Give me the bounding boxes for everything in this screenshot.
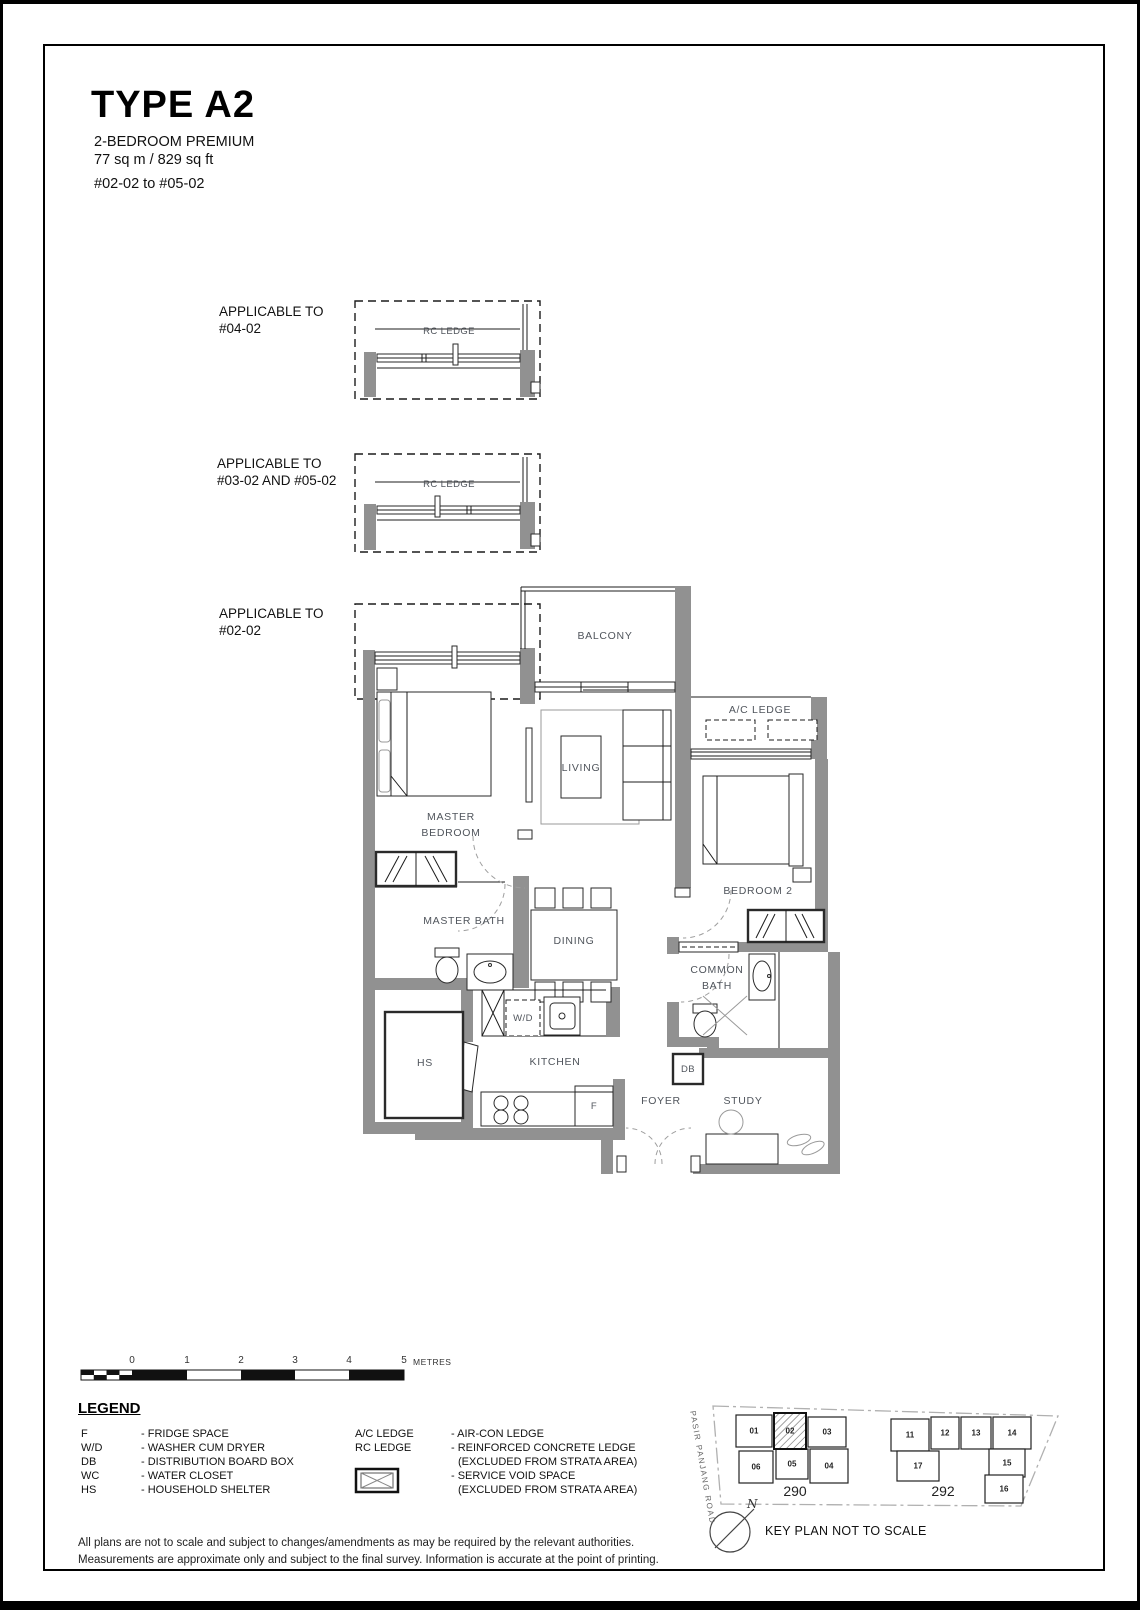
legend-def: - HOUSEHOLD SHELTER [141, 1484, 270, 1496]
north-label: N [747, 1497, 758, 1511]
page-title: TYPE A2 [91, 84, 255, 127]
scale-tick-2: 2 [238, 1355, 244, 1366]
unit-type-subtitle: 2-BEDROOM PREMIUM [94, 134, 254, 150]
scale-tick-1: 1 [184, 1355, 190, 1366]
keyplan-unit-01: 01 [750, 1427, 759, 1436]
room-label-bedroom2: BEDROOM 2 [723, 883, 792, 899]
legend-term: A/C LEDGE [355, 1428, 414, 1440]
scale-unit-label: METRES [413, 1357, 451, 1367]
legend-def: (EXCLUDED FROM STRATA AREA) [458, 1456, 637, 1468]
room-label-balcony: BALCONY [577, 628, 632, 644]
keyplan-unit-13: 13 [972, 1429, 981, 1438]
service-void-symbol [356, 1469, 398, 1492]
rc-ledge-diagram-2 [355, 454, 540, 552]
legend-term: RC LEDGE [355, 1442, 411, 1454]
legend-def: - AIR-CON LEDGE [451, 1428, 544, 1440]
scale-tick-3: 3 [292, 1355, 298, 1366]
variant-3-label: APPLICABLE TO#02-02 [219, 605, 324, 639]
keyplan-unit-02: 02 [786, 1427, 795, 1436]
legend-def: - FRIDGE SPACE [141, 1428, 229, 1440]
keyplan-unit-12: 12 [941, 1429, 950, 1438]
legend-def: - DISTRIBUTION BOARD BOX [141, 1456, 294, 1468]
block-290-label: 290 [783, 1483, 806, 1499]
room-label-master-bath: MASTER BATH [423, 913, 505, 929]
block-292-label: 292 [931, 1483, 954, 1499]
unit-range: #02-02 to #05-02 [94, 176, 204, 192]
keyplan-unit-06: 06 [752, 1463, 761, 1472]
room-label-hs: HS [417, 1055, 433, 1071]
unit-area: 77 sq m / 829 sq ft [94, 152, 213, 168]
legend-def: - WASHER CUM DRYER [141, 1442, 265, 1454]
floor-plan-page: TYPE A2 2-BEDROOM PREMIUM 77 sq m / 829 … [0, 0, 1140, 1610]
room-label-dining: DINING [554, 933, 595, 949]
keyplan-unit-16: 16 [1000, 1485, 1009, 1494]
rc-ledge-diagram-1 [355, 301, 540, 399]
legend-term: W/D [81, 1442, 102, 1454]
legend-term: HS [81, 1484, 96, 1496]
legend-term: DB [81, 1456, 96, 1468]
variant-2-label: APPLICABLE TO#03-02 AND #05-02 [217, 455, 336, 489]
keyplan-unit-11: 11 [906, 1431, 914, 1440]
scale-tick-0: 0 [129, 1355, 135, 1366]
room-label-study: STUDY [723, 1093, 762, 1109]
legend-heading: LEGEND [78, 1400, 141, 1417]
scale-bar [81, 1370, 404, 1380]
room-label-common-bath: COMMONBATH [690, 962, 743, 994]
room-label-kitchen: KITCHEN [530, 1054, 581, 1070]
rc-ledge-label-2: RC LEDGE [423, 477, 475, 493]
legend-term: F [81, 1428, 88, 1440]
legend-def: - SERVICE VOID SPACE [451, 1470, 575, 1482]
scale-tick-5: 5 [401, 1355, 407, 1366]
floorplan-linework [3, 4, 1140, 1610]
room-label-ac-ledge: A/C LEDGE [729, 702, 791, 718]
keyplan-unit-04: 04 [825, 1462, 834, 1471]
room-label-db: DB [681, 1062, 695, 1078]
north-compass-icon [710, 1509, 754, 1552]
room-label-fridge: F [591, 1099, 597, 1115]
keyplan-unit-15: 15 [1003, 1459, 1012, 1468]
keyplan-caption: KEY PLAN NOT TO SCALE [765, 1524, 927, 1538]
keyplan-unit-05: 05 [788, 1460, 797, 1469]
legend-term: WC [81, 1470, 99, 1482]
legend-def: (EXCLUDED FROM STRATA AREA) [458, 1484, 637, 1496]
legend-def: - REINFORCED CONCRETE LEDGE [451, 1442, 636, 1454]
keyplan-unit-14: 14 [1008, 1429, 1017, 1438]
rc-ledge-label-1: RC LEDGE [423, 324, 475, 340]
disclaimer-line-1: All plans are not to scale and subject t… [78, 1537, 634, 1549]
disclaimer-line-2: Measurements are approximate only and su… [78, 1554, 659, 1566]
room-label-wd: W/D [513, 1011, 533, 1027]
room-label-master-bedroom: MASTERBEDROOM [421, 809, 480, 841]
legend-def: - WATER CLOSET [141, 1470, 233, 1482]
room-label-living: LIVING [562, 760, 601, 776]
scale-tick-4: 4 [346, 1355, 352, 1366]
keyplan-unit-17: 17 [914, 1462, 923, 1471]
variant-1-label: APPLICABLE TO#04-02 [219, 303, 324, 337]
room-label-foyer: FOYER [641, 1093, 681, 1109]
keyplan-unit-03: 03 [823, 1428, 832, 1437]
